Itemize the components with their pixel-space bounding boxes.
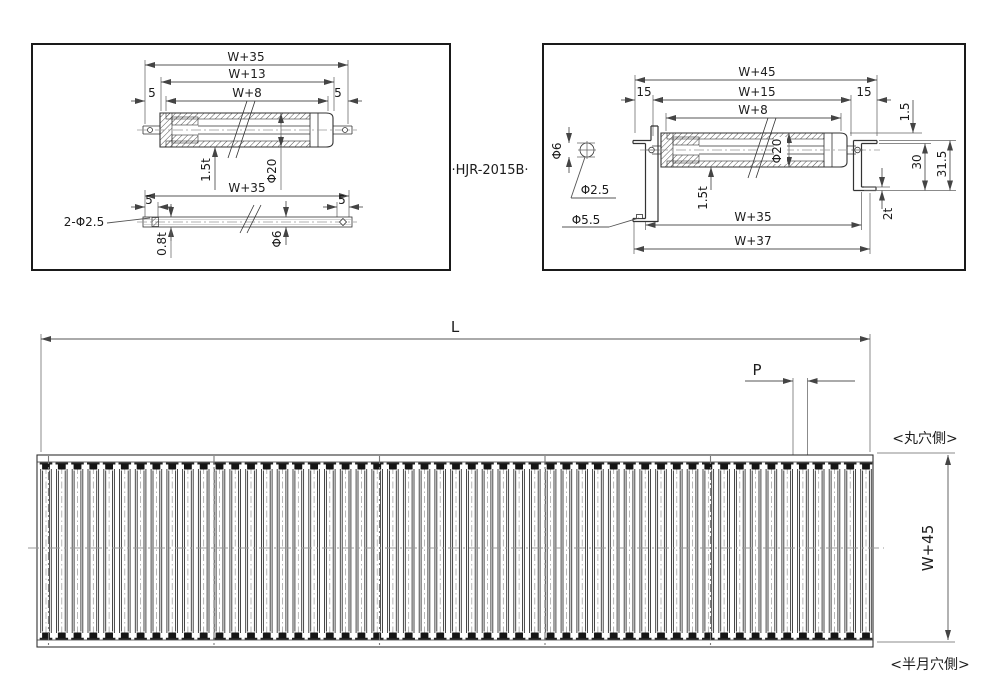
- dim-roller-overall: W+35: [145, 50, 348, 65]
- dim-roller-end-right: 5: [314, 86, 362, 101]
- round-hole-mark: [152, 218, 159, 227]
- dim-label: W+15: [738, 85, 775, 99]
- dim-label: W+8: [738, 103, 768, 117]
- dim-label: 15: [856, 85, 871, 99]
- round-hole-side-label: <丸穴側>: [892, 431, 957, 447]
- extension-lines: [877, 453, 955, 642]
- dim-label: 0.8t: [155, 232, 169, 256]
- pin-hole-left: [148, 128, 153, 133]
- dim-length: L: [41, 318, 870, 339]
- right-frame-bracket: [852, 141, 877, 191]
- dim-frame-inner: 30: [910, 144, 925, 191]
- dim-label: Φ20: [770, 139, 784, 164]
- dim-offset-left: 15: [621, 85, 667, 100]
- dim-offset-right: 15: [837, 85, 891, 100]
- shaft-body: [137, 205, 357, 233]
- dim-label: Φ5.5: [572, 213, 601, 227]
- dim-label: 1.5t: [199, 158, 213, 182]
- dim-shaft-wall: 0.8t: [155, 204, 171, 258]
- dim-label: W+8: [232, 86, 262, 100]
- dim-shaft-overall: W+35: [145, 181, 349, 196]
- pin-hole-detail: Φ6 Φ2.5 Φ5.5: [550, 127, 639, 227]
- dim-shaft-span: W+35: [646, 210, 862, 225]
- technical-drawing: W+35 W+13 W+8 5 5: [0, 0, 1000, 692]
- dim-shaft-end-right: 5: [323, 193, 363, 207]
- dim-label: 1.5t: [696, 186, 710, 210]
- frame-section-view-box: W+45 15 W+15 15 W+8: [543, 44, 965, 270]
- dim-roller-tube-face: W+8: [166, 86, 328, 101]
- dim-label: 5: [338, 193, 346, 207]
- conveyor-frame: [37, 455, 873, 647]
- dim-label: P: [752, 361, 761, 379]
- roller-body: [640, 118, 880, 178]
- dim-mount-span: W+37: [634, 234, 870, 249]
- dim-roller-end-left: 5: [131, 86, 181, 101]
- dim-label: Φ20: [265, 159, 279, 184]
- dim-label: 2-Φ2.5: [64, 215, 105, 229]
- dim-label: 2t: [881, 208, 895, 221]
- roller-side-view-box: W+35 W+13 W+8 5 5: [32, 44, 450, 270]
- dim-label: 5: [334, 86, 342, 100]
- dim-label: 30: [910, 154, 924, 169]
- dim-width: W+45: [919, 455, 948, 640]
- roller-body: [137, 101, 357, 158]
- dim-wall-right-view: 1.5t: [696, 167, 711, 210]
- plan-view: L P W+45 <丸穴側> <半月穴側>: [28, 318, 970, 673]
- pin-hole-right: [343, 128, 348, 133]
- dim-label: W+35: [228, 181, 265, 195]
- dim-label: W+35: [227, 50, 264, 64]
- dim-crown: 1.5: [898, 100, 913, 133]
- dim-label: W+45: [919, 525, 937, 572]
- dim-label: L: [451, 318, 460, 336]
- model-label: ·HJR-2015B·: [451, 163, 528, 178]
- dim-between-frames: W+15: [653, 85, 851, 100]
- left-frame-bracket: [633, 126, 658, 222]
- dim-shaft-end-left: 5: [131, 193, 172, 207]
- dim-label: 1.5: [898, 102, 912, 121]
- dim-label: W+13: [228, 67, 265, 81]
- dim-label: W+35: [734, 210, 771, 224]
- frame-mount-hole: [637, 215, 643, 219]
- dim-label: W+45: [738, 65, 775, 79]
- half-moon-side-label: <半月穴側>: [890, 657, 969, 673]
- dim-tube-face: W+8: [666, 103, 841, 118]
- dim-roller-wall: 1.5t: [199, 147, 215, 190]
- dim-label: Φ2.5: [581, 183, 610, 197]
- extension-lines: [41, 334, 870, 452]
- drawing-canvas: W+35 W+13 W+8 5 5: [0, 0, 1000, 692]
- dim-frame-height: 31.5: [935, 141, 950, 191]
- dim-label: 5: [145, 193, 153, 207]
- dim-label: W+37: [734, 234, 771, 248]
- dim-pitch: P: [745, 361, 855, 455]
- dim-label: 15: [636, 85, 651, 99]
- dim-label: 5: [148, 86, 156, 100]
- dim-flange-thickness: 2t: [881, 168, 895, 220]
- dim-roller-tube-cap: W+13: [161, 67, 334, 82]
- dim-label: 31.5: [935, 151, 949, 178]
- dim-frame-overall: W+45: [635, 65, 877, 80]
- dim-label: Φ6: [270, 230, 284, 247]
- dim-label: Φ6: [550, 142, 564, 159]
